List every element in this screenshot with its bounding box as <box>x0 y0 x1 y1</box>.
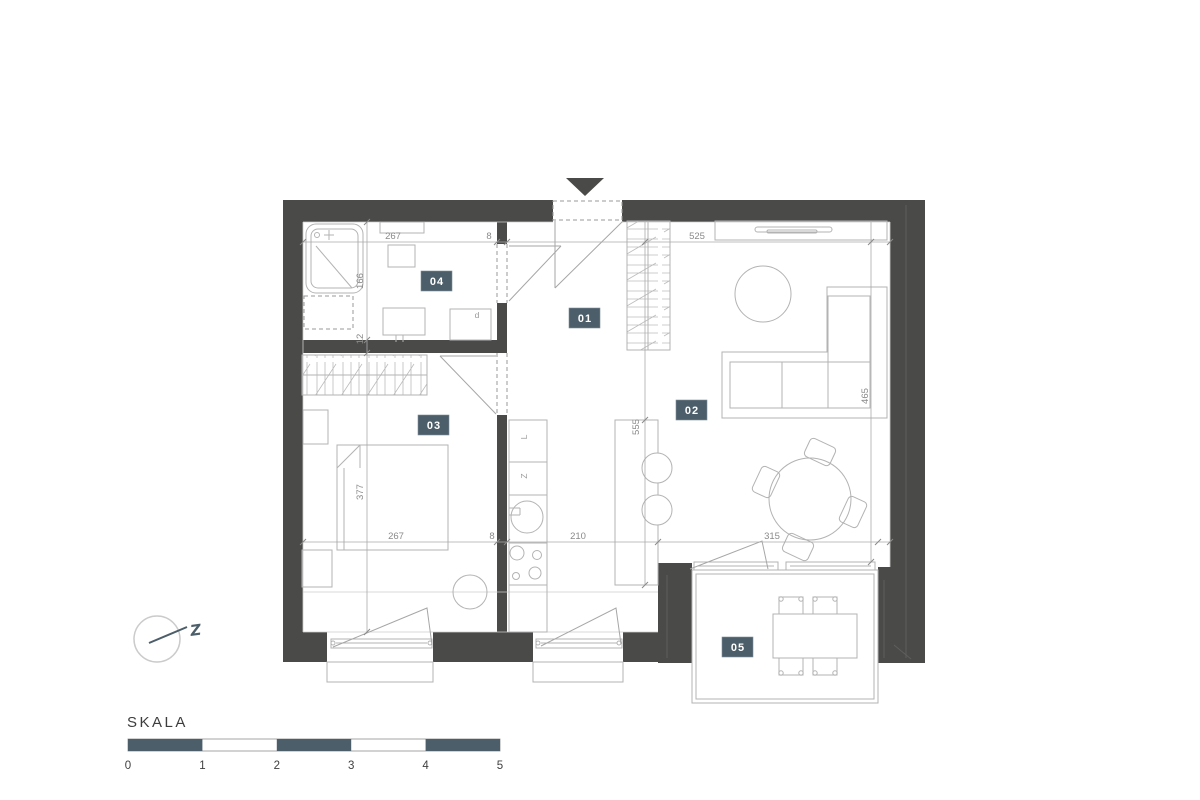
room-label-03: 03 <box>418 415 449 435</box>
scale-segment-dark <box>426 739 500 751</box>
kitchen-counter <box>509 420 547 632</box>
compass: Z <box>134 616 203 662</box>
scale-tick-3: 3 <box>348 760 354 772</box>
dishwasher-letter: Z <box>519 473 529 478</box>
dining-set <box>751 437 868 562</box>
kitchen-fixtures: L Z <box>509 420 672 632</box>
bar-stool <box>642 453 672 483</box>
room-label-02: 02 <box>676 400 707 420</box>
dining-chair <box>751 465 781 499</box>
scale-bar-title: SKALA <box>127 714 188 731</box>
entrance-arrow-icon <box>566 178 604 196</box>
balcony-glass-doors <box>690 541 875 570</box>
dim-top-1: 267 <box>385 231 401 242</box>
scale-bar: SKALA 0 1 2 3 4 5 <box>125 714 503 772</box>
dining-chair <box>803 437 837 467</box>
dining-table <box>769 458 851 540</box>
dim-bottom-3: 210 <box>570 531 586 542</box>
svg-text:01: 01 <box>578 313 592 325</box>
dim-kitchen: 555 <box>631 419 642 435</box>
tv-unit <box>715 221 887 240</box>
walls <box>283 200 925 663</box>
bedroom-door-swing <box>440 356 496 414</box>
compass-label: Z <box>188 620 203 640</box>
armchair <box>735 266 791 322</box>
windows <box>327 541 875 682</box>
balcony-chairs <box>779 597 837 675</box>
entrance <box>553 178 623 288</box>
dim-right: 465 <box>860 388 871 404</box>
bar-stool <box>642 495 672 525</box>
dim-left-2: 12 <box>355 334 366 345</box>
floor-plan-canvas: d L Z <box>0 0 1200 800</box>
dim-bottom-1: 267 <box>388 531 404 542</box>
bedroom-furniture <box>302 355 487 609</box>
bathroom-door-swing <box>509 246 561 301</box>
dimension-lines <box>300 219 893 635</box>
room-label-01: 01 <box>569 308 600 328</box>
scale-tick-4: 4 <box>422 760 429 772</box>
scale-segment-dark <box>128 739 202 751</box>
entrance-door-opening <box>553 201 622 220</box>
dim-bottom-2: 8 <box>489 531 494 542</box>
scale-segment-dark <box>277 739 351 751</box>
svg-text:04: 04 <box>430 276 444 288</box>
scale-tick-1: 1 <box>199 760 205 772</box>
bedroom-wardrobe <box>302 355 427 395</box>
dim-bottom-4: 315 <box>764 531 780 542</box>
washing-machine <box>383 308 425 342</box>
dryer-letter: d <box>475 310 480 320</box>
scale-tick-0: 0 <box>125 760 131 772</box>
dim-left-3: 377 <box>355 484 366 500</box>
dim-top-2: 8 <box>486 231 491 242</box>
dim-left-1: 166 <box>355 273 366 289</box>
room-label-05: 05 <box>722 637 753 657</box>
bathroom-cabinet <box>388 245 415 267</box>
bench <box>302 550 332 587</box>
room-labels: 01 02 03 04 05 <box>418 271 753 657</box>
svg-text:02: 02 <box>685 405 699 417</box>
scale-tick-5: 5 <box>497 760 503 772</box>
sink <box>509 501 543 533</box>
fridge-letter: L <box>519 434 529 439</box>
dim-top-3: 525 <box>689 231 705 242</box>
cooktop <box>510 546 542 580</box>
room-label-04: 04 <box>421 271 452 291</box>
nightstand <box>303 410 328 444</box>
floor-plan-page: d L Z <box>0 0 1200 800</box>
entrance-door-swing <box>555 221 623 288</box>
svg-text:03: 03 <box>427 420 441 432</box>
scale-tick-2: 2 <box>274 760 280 772</box>
bedroom-window <box>327 608 433 682</box>
dining-chair <box>781 532 815 562</box>
balcony-table <box>773 614 857 658</box>
balcony <box>692 570 878 703</box>
hallway-wardrobe <box>627 221 670 350</box>
svg-text:05: 05 <box>731 642 745 654</box>
dryer <box>450 309 491 340</box>
